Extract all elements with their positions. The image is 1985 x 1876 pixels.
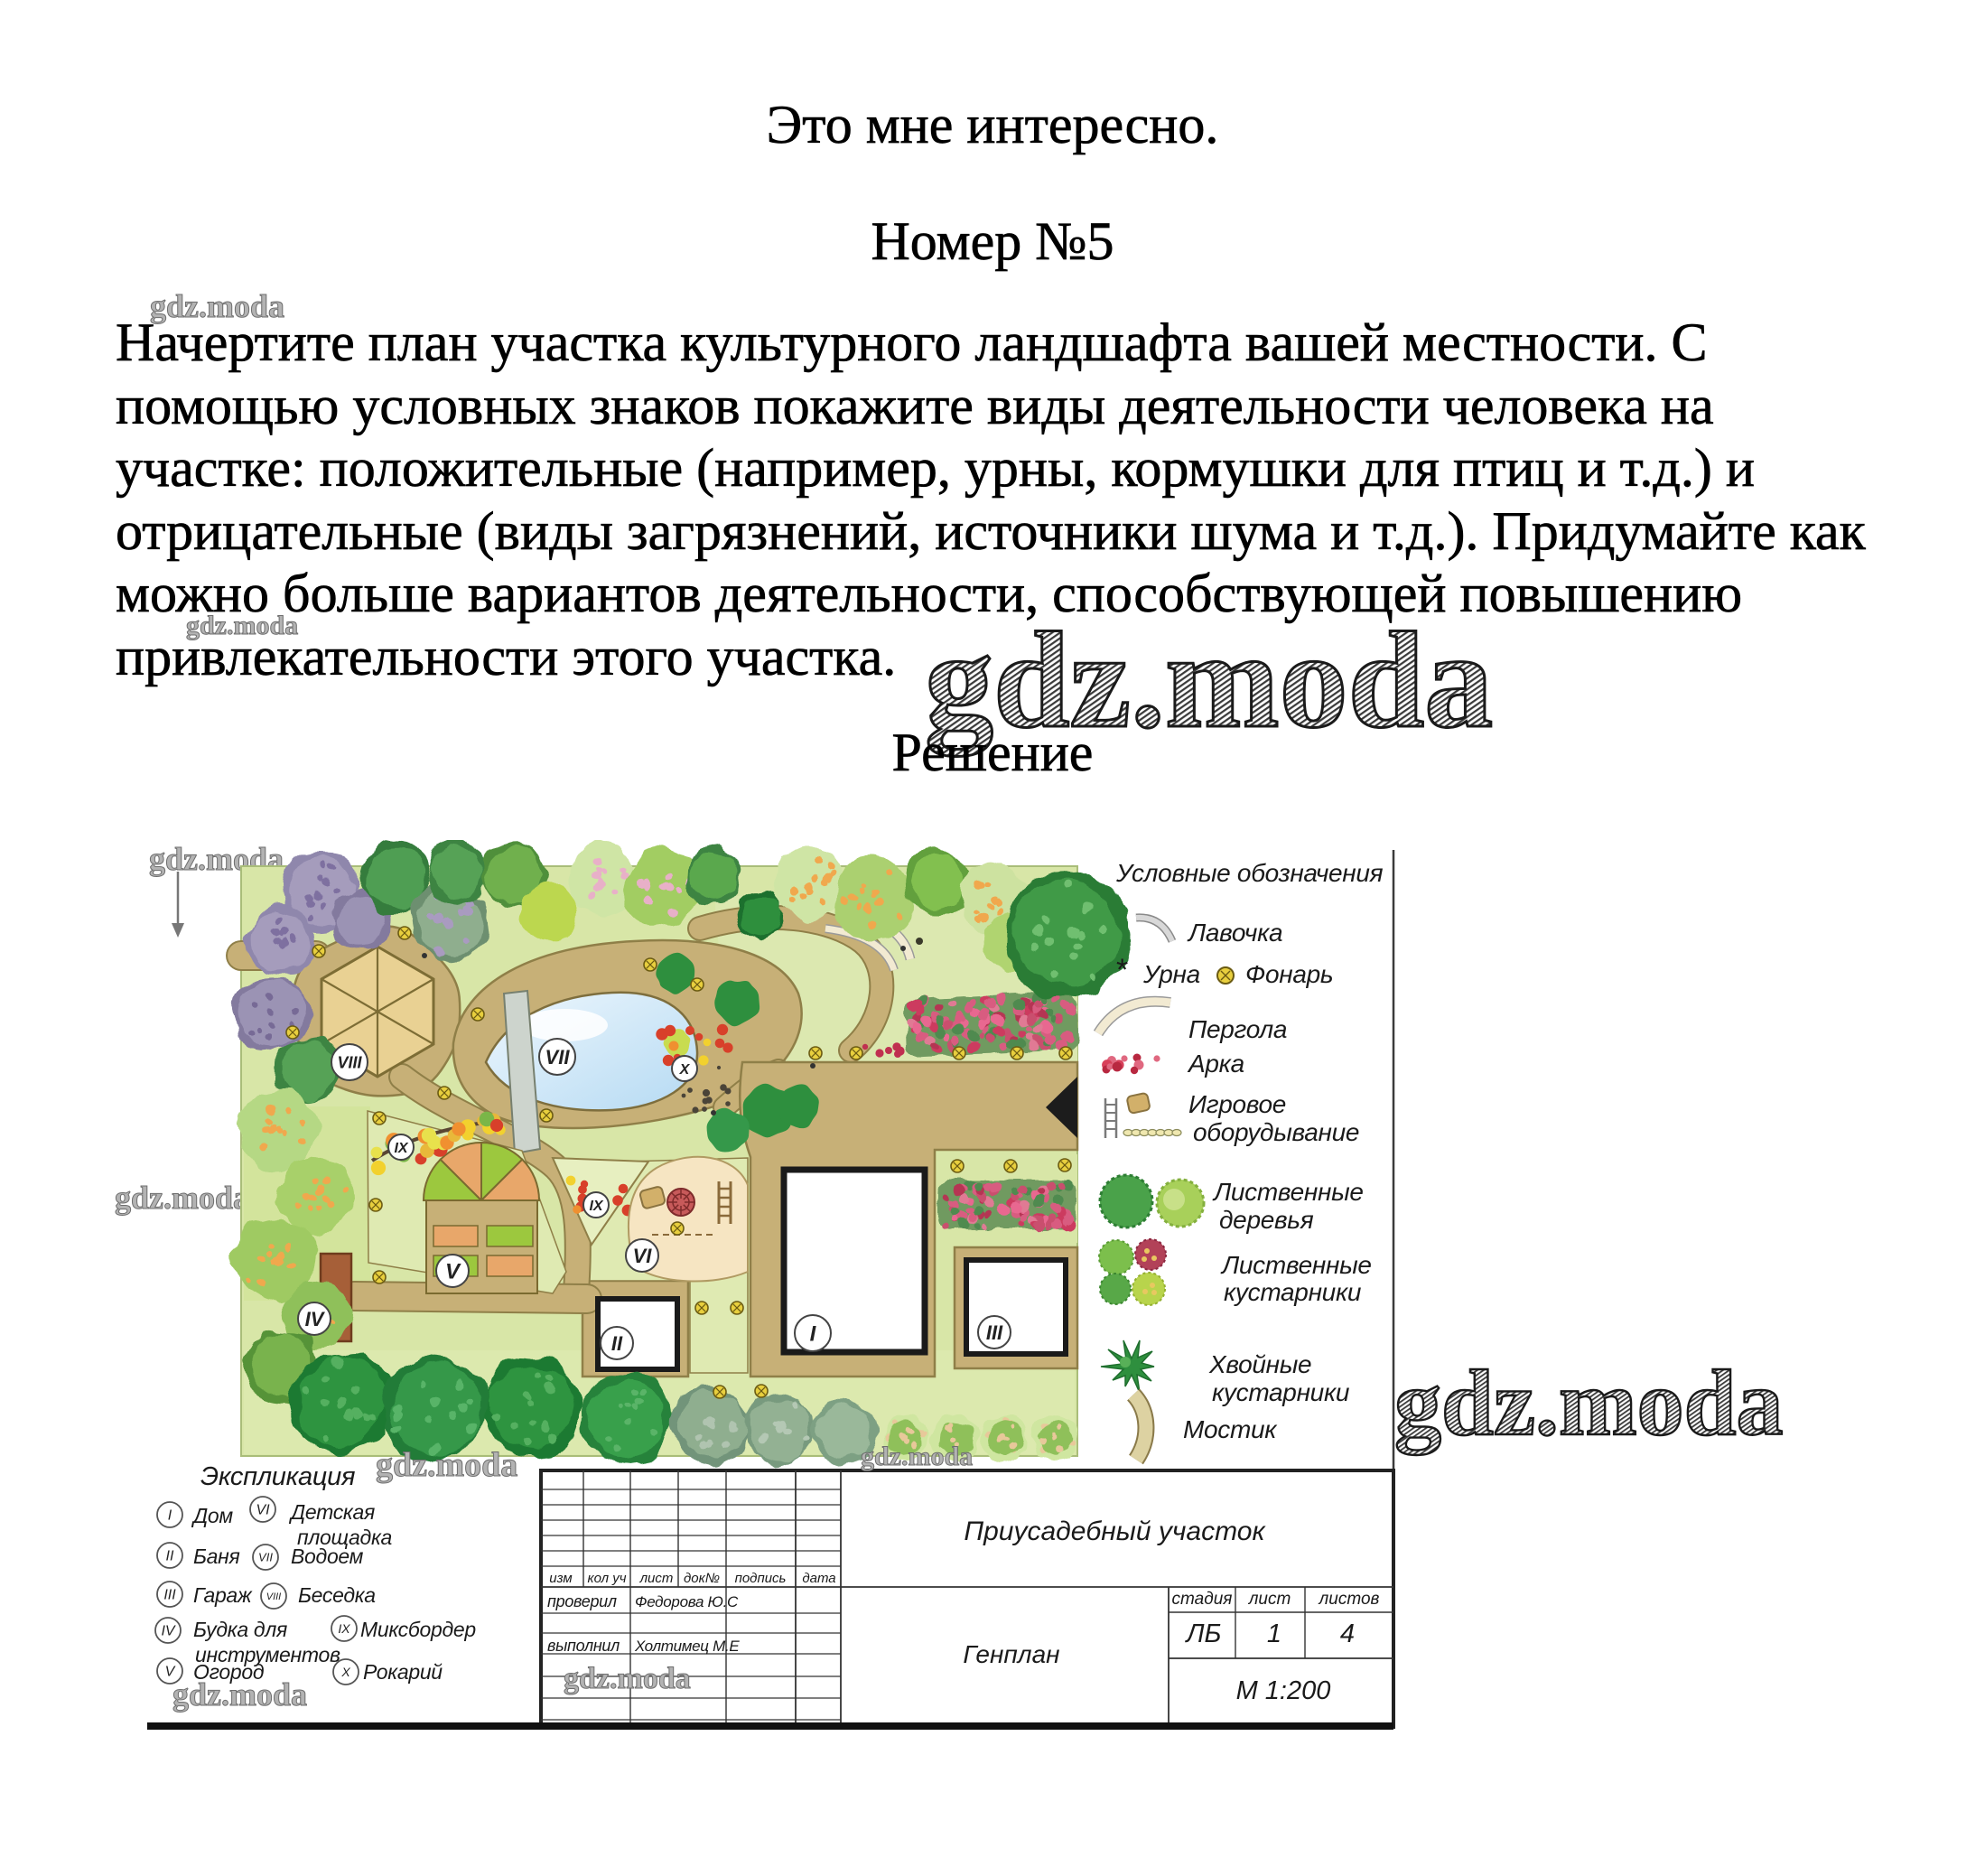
svg-text:III: III (986, 1321, 1003, 1344)
svg-text:кустарники: кустарники (1212, 1378, 1350, 1406)
svg-text:Пергола: Пергола (1188, 1015, 1287, 1043)
svg-text:Лавочка: Лавочка (1187, 919, 1282, 947)
svg-text:Водоем: Водоем (291, 1545, 364, 1568)
svg-text:Баня: Баня (193, 1545, 240, 1568)
svg-text:X: X (340, 1665, 350, 1679)
svg-text:VIII: VIII (337, 1053, 362, 1071)
svg-text:IV: IV (161, 1624, 175, 1639)
svg-text:VIII: VIII (266, 1591, 282, 1602)
svg-text:Миксбордер: Миксбордер (360, 1618, 476, 1641)
svg-text:лист: лист (639, 1571, 674, 1586)
svg-text:II: II (611, 1332, 623, 1355)
svg-text:III: III (163, 1588, 176, 1603)
svg-text:док№: док№ (684, 1571, 720, 1586)
svg-text:VI: VI (256, 1503, 270, 1518)
svg-text:дата: дата (802, 1571, 835, 1586)
svg-text:Рокарий: Рокарий (363, 1660, 443, 1684)
svg-text:Хвойные: Хвойные (1208, 1350, 1311, 1378)
svg-text:выполнил: выполнил (547, 1637, 620, 1655)
svg-text:проверил: проверил (547, 1592, 617, 1610)
svg-text:М 1:200: М 1:200 (1236, 1676, 1331, 1705)
svg-text:II: II (166, 1549, 174, 1564)
svg-text:листов: листов (1319, 1590, 1380, 1609)
svg-text:Будка для: Будка для (193, 1618, 287, 1641)
svg-text:подпись: подпись (735, 1571, 787, 1586)
svg-text:Генплан: Генплан (963, 1640, 1059, 1668)
svg-text:X: X (679, 1062, 691, 1078)
svg-text:Холтимец М.Е: Холтимец М.Е (634, 1638, 740, 1655)
svg-text:VI: VI (633, 1245, 653, 1267)
svg-text:V: V (445, 1260, 461, 1284)
svg-text:Игровое: Игровое (1188, 1090, 1286, 1118)
svg-text:Мостик: Мостик (1183, 1415, 1278, 1443)
svg-text:VII: VII (545, 1046, 571, 1069)
svg-text:лист: лист (1248, 1590, 1291, 1609)
svg-text:Детская: Детская (288, 1500, 375, 1524)
svg-text:*: * (1116, 953, 1128, 987)
svg-text:Федорова Ю.С: Федорова Ю.С (635, 1593, 739, 1610)
svg-text:Дом: Дом (191, 1504, 233, 1527)
svg-text:IX: IX (394, 1141, 408, 1156)
svg-text:Фонарь: Фонарь (1245, 960, 1333, 988)
svg-text:Лиственные: Лиственные (1212, 1178, 1364, 1206)
svg-text:Урна: Урна (1142, 960, 1200, 988)
svg-text:IV: IV (305, 1308, 326, 1330)
svg-text:1: 1 (1267, 1619, 1281, 1648)
svg-text:IX: IX (338, 1621, 350, 1636)
svg-text:ЛБ: ЛБ (1185, 1619, 1222, 1648)
svg-text:Гараж: Гараж (193, 1583, 253, 1607)
svg-text:деревья: деревья (1219, 1206, 1314, 1234)
svg-text:изм: изм (549, 1571, 572, 1586)
svg-text:gdz.moda: gdz.moda (1394, 1355, 1783, 1455)
svg-text:Лиственные: Лиственные (1220, 1251, 1372, 1279)
svg-text:VII: VII (258, 1551, 273, 1564)
svg-text:Условные обозначения: Условные обозначения (1115, 859, 1384, 887)
svg-text:кол уч: кол уч (588, 1571, 627, 1586)
svg-text:оборудывание: оборудывание (1193, 1118, 1359, 1146)
svg-text:Беседка: Беседка (298, 1583, 376, 1607)
svg-text:I: I (168, 1508, 172, 1524)
svg-text:Арка: Арка (1187, 1050, 1244, 1078)
svg-text:Приусадебный участок: Приусадебный участок (964, 1517, 1266, 1546)
svg-text:Экспликация: Экспликация (200, 1462, 355, 1491)
svg-text:кустарники: кустарники (1224, 1278, 1362, 1306)
svg-text:стадия: стадия (1172, 1590, 1233, 1609)
svg-text:4: 4 (1340, 1619, 1355, 1648)
svg-text:IX: IX (589, 1199, 603, 1214)
